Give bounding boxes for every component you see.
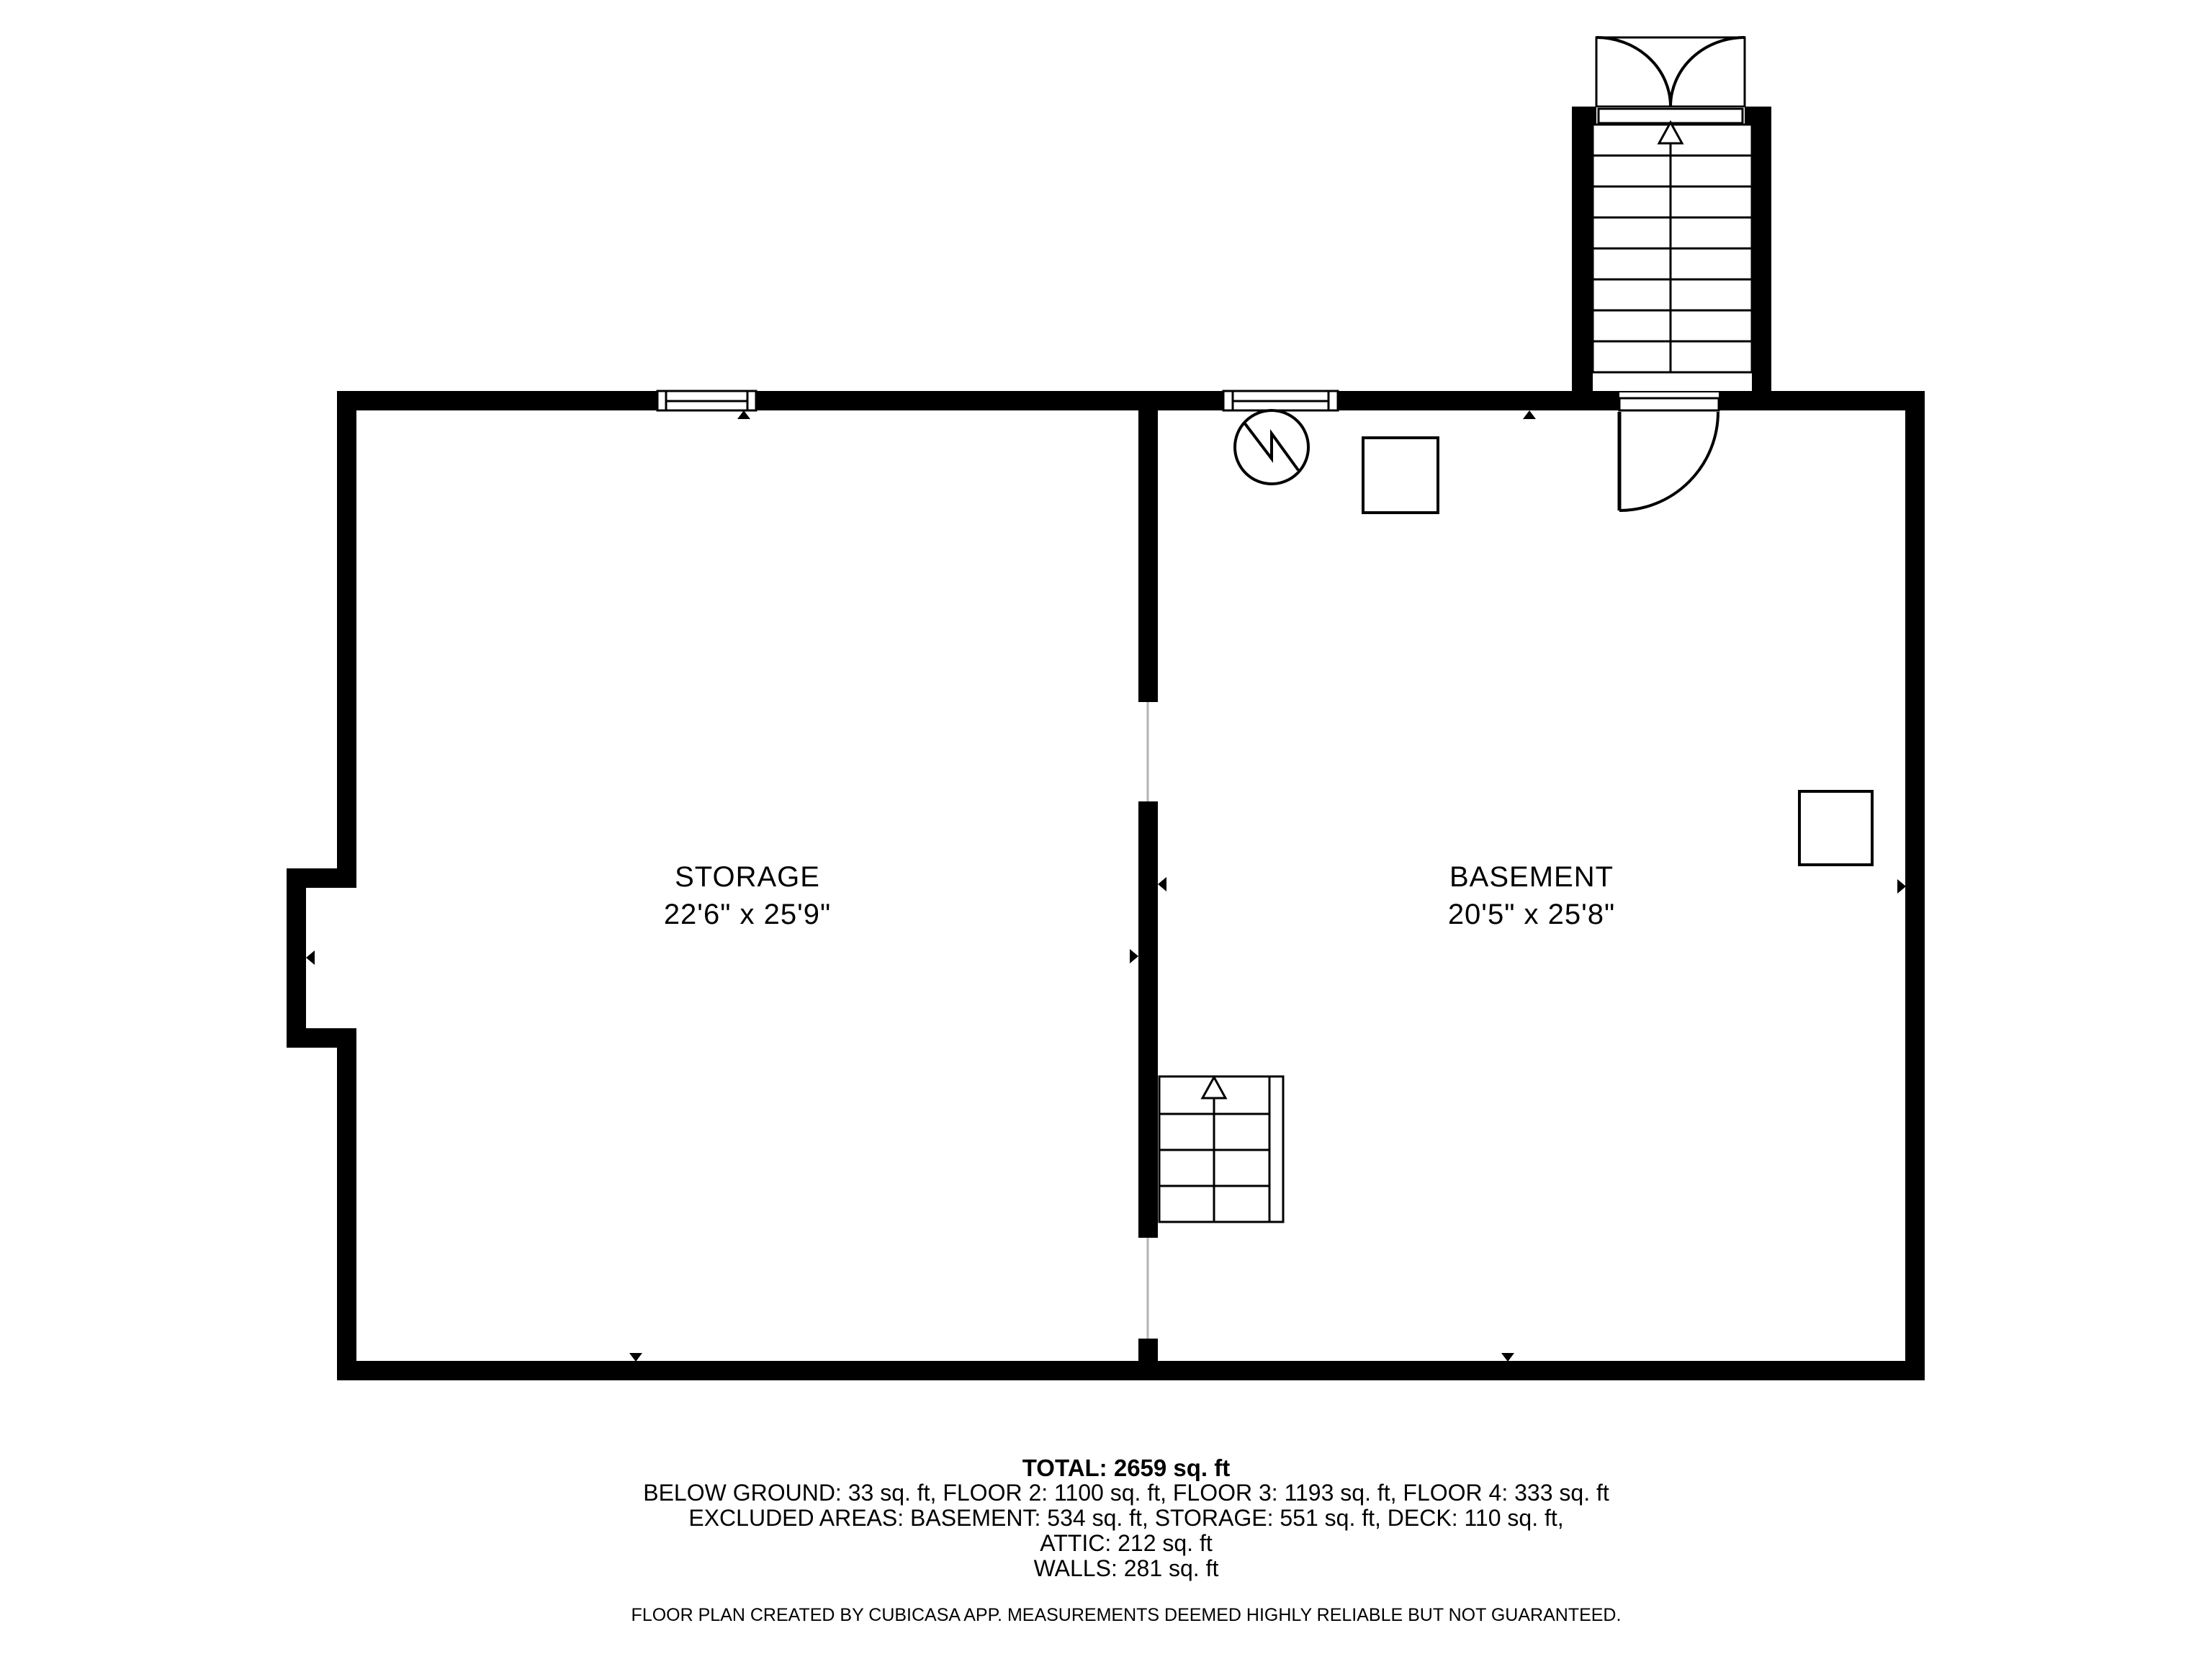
area-summary: TOTAL: 2659 sq. ft BELOW GROUND: 33 sq. …: [0, 1455, 2212, 1581]
summary-line: EXCLUDED AREAS: BASEMENT: 534 sq. ft, ST…: [40, 1506, 2212, 1531]
wall-alcove-bottom: [287, 1028, 356, 1048]
room-dimensions: 20'5" x 25'8": [1100, 896, 1964, 933]
wall-alcove-outer: [287, 868, 306, 1048]
marker-right-icon: [1130, 949, 1138, 963]
window-storage: [657, 391, 756, 410]
marker-down-icon: [1501, 1353, 1514, 1362]
wall-stairwell-right: [1752, 107, 1771, 391]
water-heater-icon: [1235, 410, 1308, 484]
wall-stairwell-left: [1572, 107, 1593, 391]
marker-up-icon: [1523, 410, 1536, 419]
basement-entry-door: [1619, 412, 1718, 511]
floorplan-page: STORAGE 22'6" x 25'9" BASEMENT 20'5" x 2…: [0, 0, 2212, 1659]
wall-stairwell-top-left: [1572, 107, 1596, 125]
room-name: STORAGE: [315, 858, 1179, 896]
marker-up-icon: [737, 410, 750, 419]
disclaimer-text: FLOOR PLAN CREATED BY CUBICASA APP. MEAS…: [0, 1604, 2212, 1626]
summary-total: TOTAL: 2659 sq. ft: [40, 1455, 2212, 1480]
threshold-frame: [1619, 398, 1719, 410]
summary-line: BELOW GROUND: 33 sq. ft, FLOOR 2: 1100 s…: [40, 1480, 2212, 1506]
door-swing-arc: [1619, 412, 1718, 511]
staircase-lower: [1159, 1076, 1283, 1222]
summary-line: WALLS: 281 sq. ft: [40, 1556, 2212, 1581]
fixtures: [1235, 410, 1872, 865]
entry-stairwell: [1593, 37, 1752, 511]
furnace-icon: [1363, 438, 1438, 513]
window-basement: [1223, 391, 1338, 410]
wall-left-lower: [337, 1048, 356, 1380]
double-door: [1596, 37, 1745, 107]
summary-line: ATTIC: 212 sq. ft: [40, 1531, 2212, 1556]
room-name: BASEMENT: [1100, 858, 1964, 896]
wall-stairwell-top-right: [1745, 107, 1771, 125]
staircase-upper: [1593, 122, 1752, 372]
wall-divider-upper: [1138, 410, 1158, 702]
wall-left-upper: [337, 391, 356, 868]
wall-divider-lower: [1138, 1339, 1158, 1361]
marker-left-icon: [306, 950, 315, 965]
wall-bottom: [337, 1361, 1925, 1380]
fixture-box-icon: [1799, 791, 1872, 865]
floorplan-drawing: [0, 0, 2212, 1659]
room-dimensions: 22'6" x 25'9": [315, 896, 1179, 933]
marker-down-icon: [629, 1353, 642, 1362]
room-label-basement: BASEMENT 20'5" x 25'8": [1100, 858, 1964, 933]
room-label-storage: STORAGE 22'6" x 25'9": [315, 858, 1179, 933]
